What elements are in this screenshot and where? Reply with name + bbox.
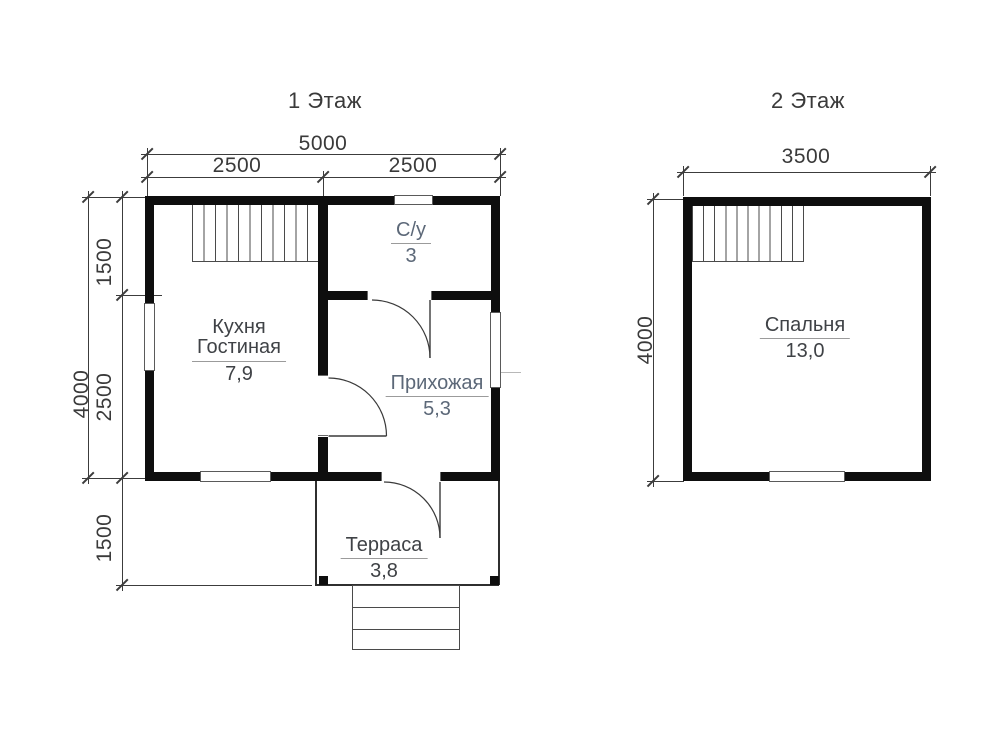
- room-label-kitchen: Кухня Гостиная 7,9: [192, 317, 286, 384]
- wall: [432, 291, 491, 300]
- extension-line: [116, 585, 312, 586]
- dim-floor2-height: 4000: [634, 316, 658, 365]
- extension-line: [683, 166, 684, 196]
- room-area: 5,3: [386, 399, 489, 419]
- door-opening: [318, 375, 328, 436]
- dim-total-width: 5000: [299, 132, 348, 156]
- door-opening: [381, 472, 441, 481]
- room-name: Прихожая: [386, 373, 489, 397]
- floor-plan-canvas: 1 Этаж 5000 2500 2500 4000 1500 2500 150…: [0, 0, 1000, 750]
- door-arc-terrace: [384, 482, 440, 538]
- extension-line: [930, 166, 931, 196]
- window-center-mark: [501, 372, 521, 373]
- terrace-edge: [498, 481, 500, 585]
- floor2-title: 2 Этаж: [771, 88, 845, 114]
- extension-line: [323, 171, 324, 196]
- dimension-line: [88, 191, 89, 484]
- terrace-post: [319, 576, 328, 585]
- extension-line: [147, 148, 148, 196]
- dim-terrace-depth: 1500: [93, 514, 117, 563]
- dim-floor2-width: 3500: [782, 145, 831, 169]
- extension-line: [82, 478, 148, 479]
- window: [200, 471, 271, 482]
- room-label-bedroom: Спальня 13,0: [760, 315, 850, 362]
- room-label-hallway: Прихожая 5,3: [386, 373, 489, 420]
- wall: [318, 437, 328, 472]
- door-arc-bathroom: [372, 300, 430, 358]
- terrace-edge: [315, 481, 317, 585]
- window: [394, 195, 433, 205]
- room-area: 3: [391, 246, 431, 266]
- wall: [683, 197, 692, 481]
- floor1-title: 1 Этаж: [288, 88, 362, 114]
- dim-left-width: 2500: [213, 154, 262, 178]
- dimension-line: [677, 172, 936, 173]
- terrace-steps: [352, 585, 460, 650]
- dim-total-height: 4000: [70, 370, 94, 419]
- room-name: Терраса: [341, 535, 428, 559]
- step-line: [353, 629, 459, 630]
- door-arc-kitchen: [329, 378, 387, 436]
- extension-line: [82, 197, 148, 198]
- window: [144, 303, 155, 371]
- door-opening: [367, 291, 432, 300]
- room-area: 3,8: [341, 561, 428, 581]
- extension-line: [500, 148, 501, 196]
- step-line: [353, 607, 459, 608]
- room-name: С/у: [391, 220, 431, 244]
- room-name: Кухня Гостиная: [192, 317, 286, 362]
- wall: [145, 472, 500, 481]
- wall: [328, 291, 367, 300]
- room-area: 7,9: [192, 364, 286, 384]
- terrace-post: [490, 576, 499, 585]
- stairs-hatch: [692, 206, 804, 262]
- room-name: Спальня: [760, 315, 850, 339]
- extension-line: [647, 199, 684, 200]
- dim-bottom-height: 2500: [93, 373, 117, 422]
- wall: [318, 205, 328, 375]
- dim-right-width: 2500: [389, 154, 438, 178]
- dimension-line: [122, 191, 123, 591]
- wall: [683, 197, 931, 206]
- room-label-terrace: Терраса 3,8: [341, 535, 428, 582]
- window: [769, 471, 845, 482]
- room-area: 13,0: [760, 341, 850, 361]
- room-label-bathroom: С/у 3: [391, 220, 431, 267]
- wall: [145, 196, 500, 205]
- dim-top-height: 1500: [93, 238, 117, 287]
- extension-line: [116, 295, 162, 296]
- stairs-hatch: [192, 205, 318, 262]
- window: [490, 312, 501, 388]
- wall: [922, 197, 931, 481]
- extension-line: [647, 481, 684, 482]
